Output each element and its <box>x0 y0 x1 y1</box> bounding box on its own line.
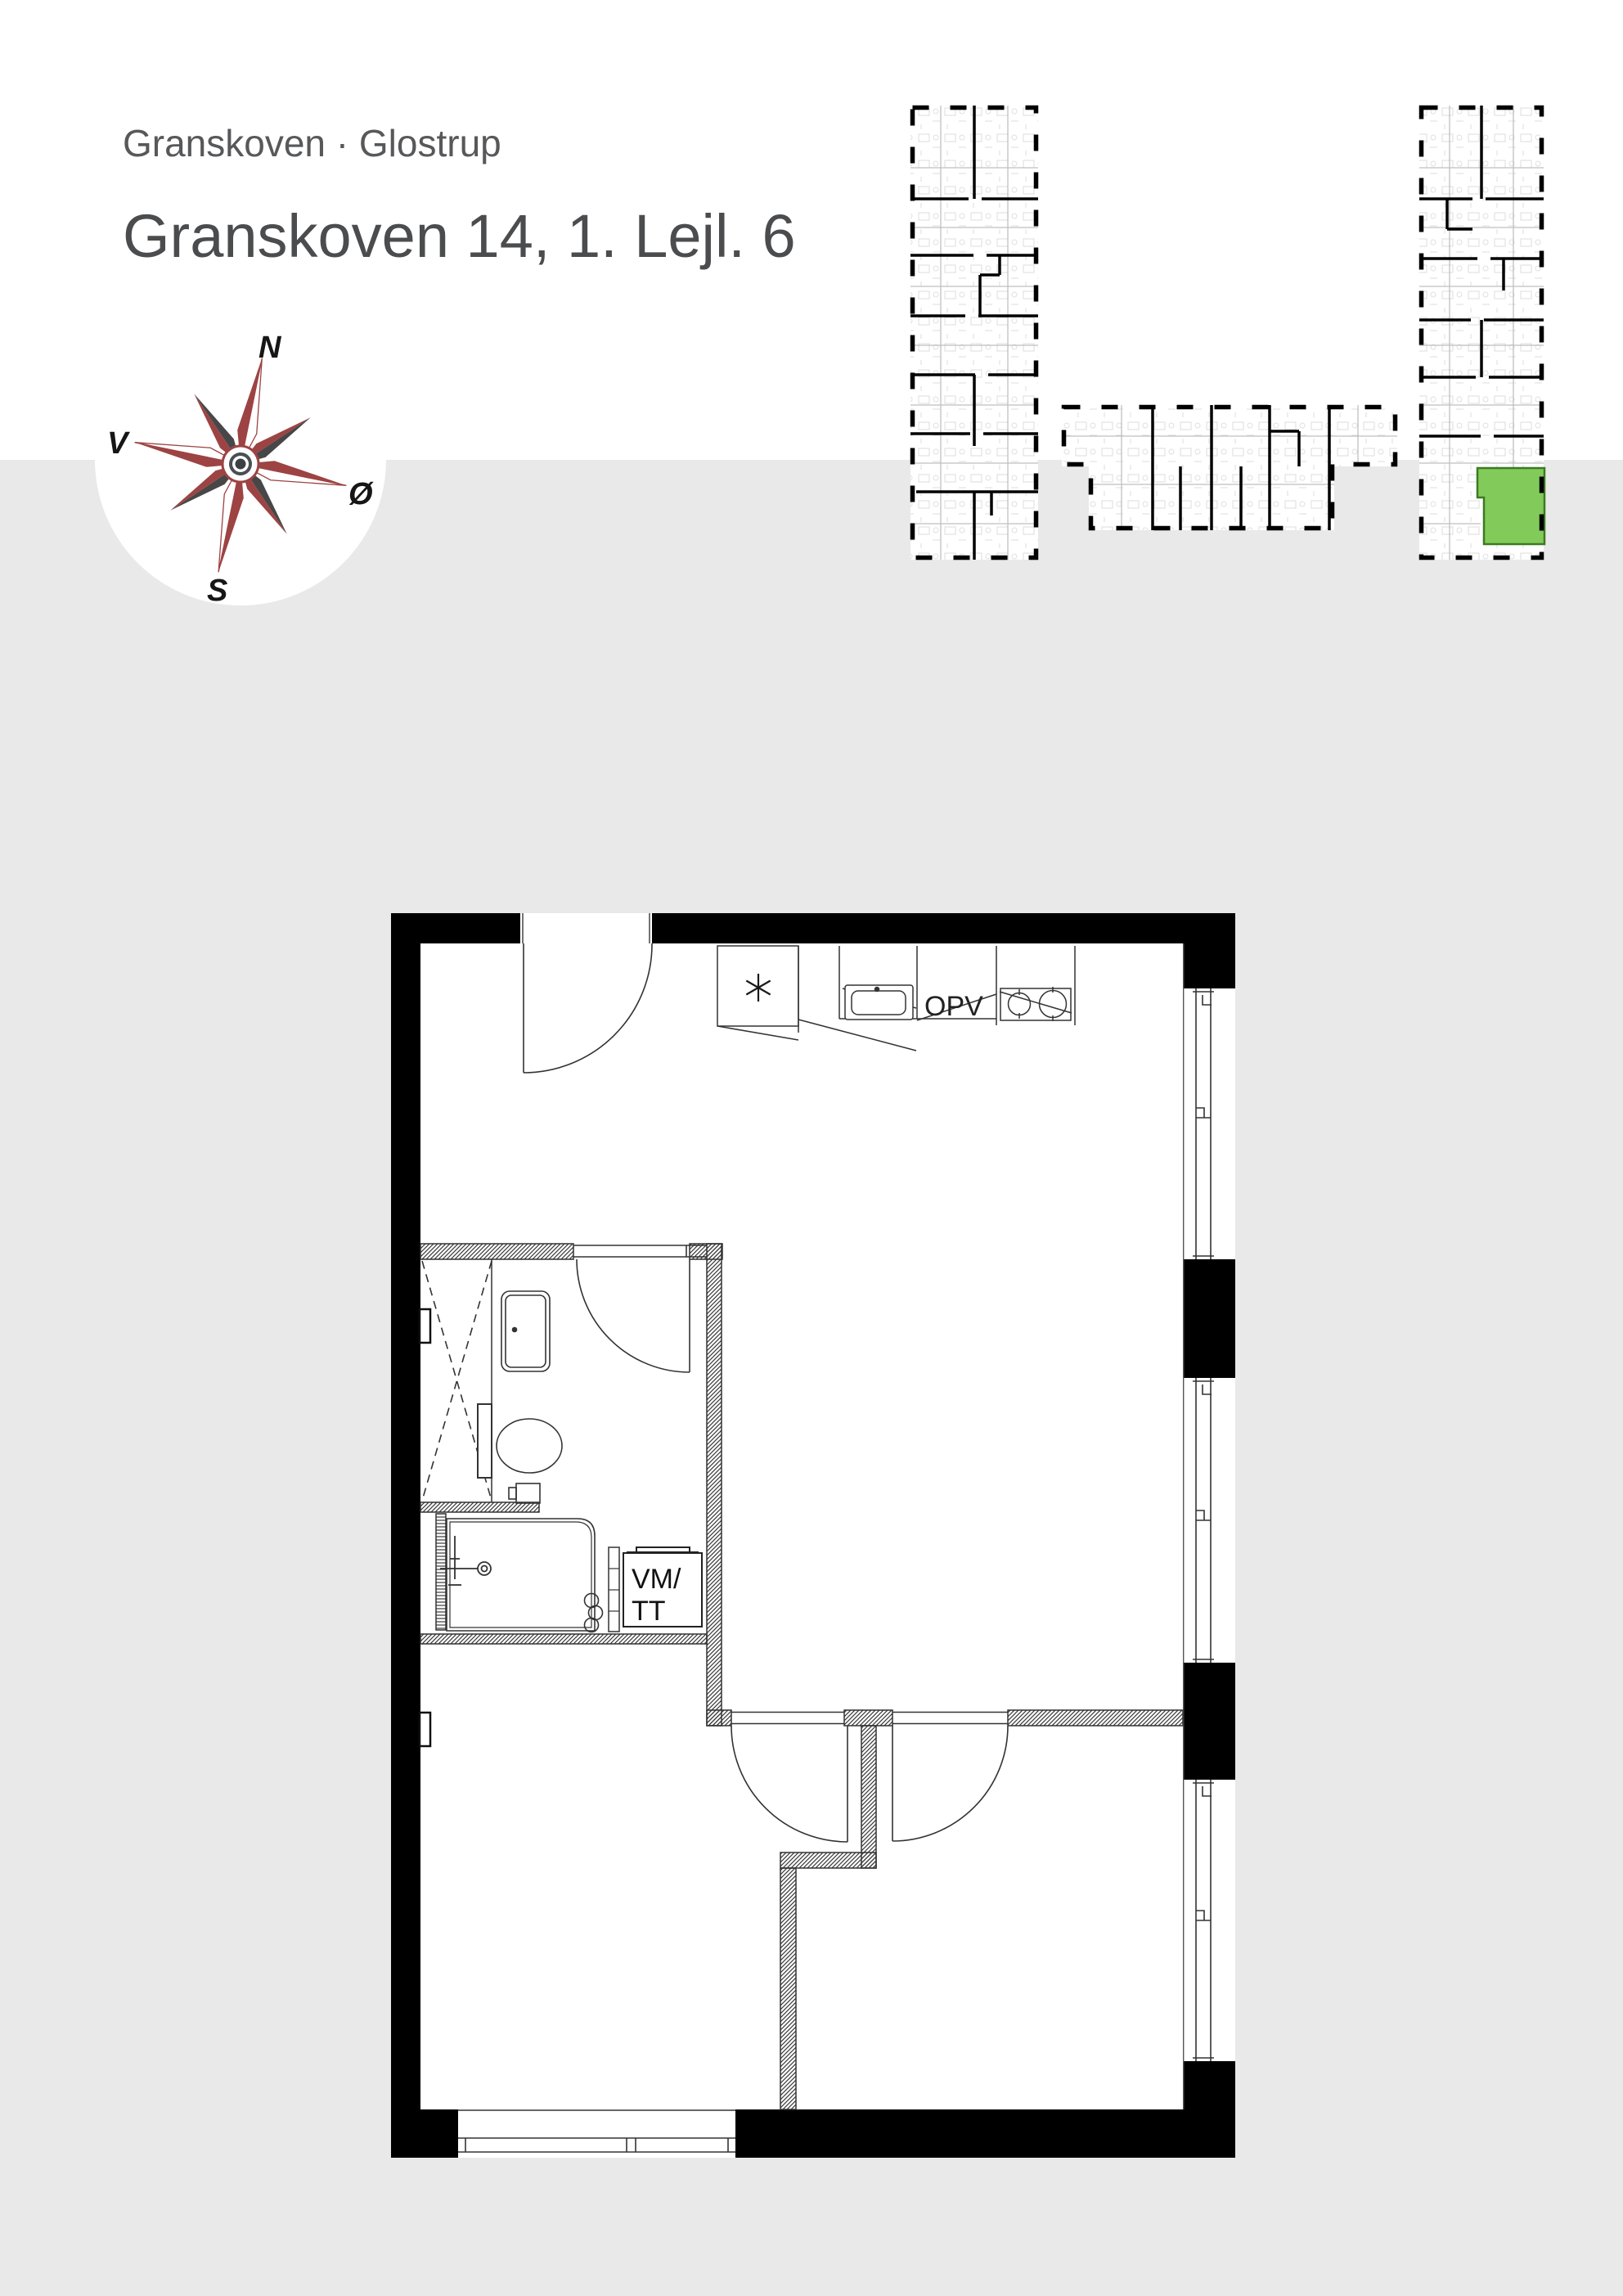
svg-text:Ø: Ø <box>348 477 374 511</box>
svg-text:OPV: OPV <box>924 991 983 1022</box>
svg-text:VM/: VM/ <box>632 1564 681 1595</box>
svg-text:TT: TT <box>632 1596 666 1627</box>
svg-text:V: V <box>107 426 130 461</box>
svg-text:N: N <box>259 331 282 365</box>
svg-text:S: S <box>207 574 227 608</box>
